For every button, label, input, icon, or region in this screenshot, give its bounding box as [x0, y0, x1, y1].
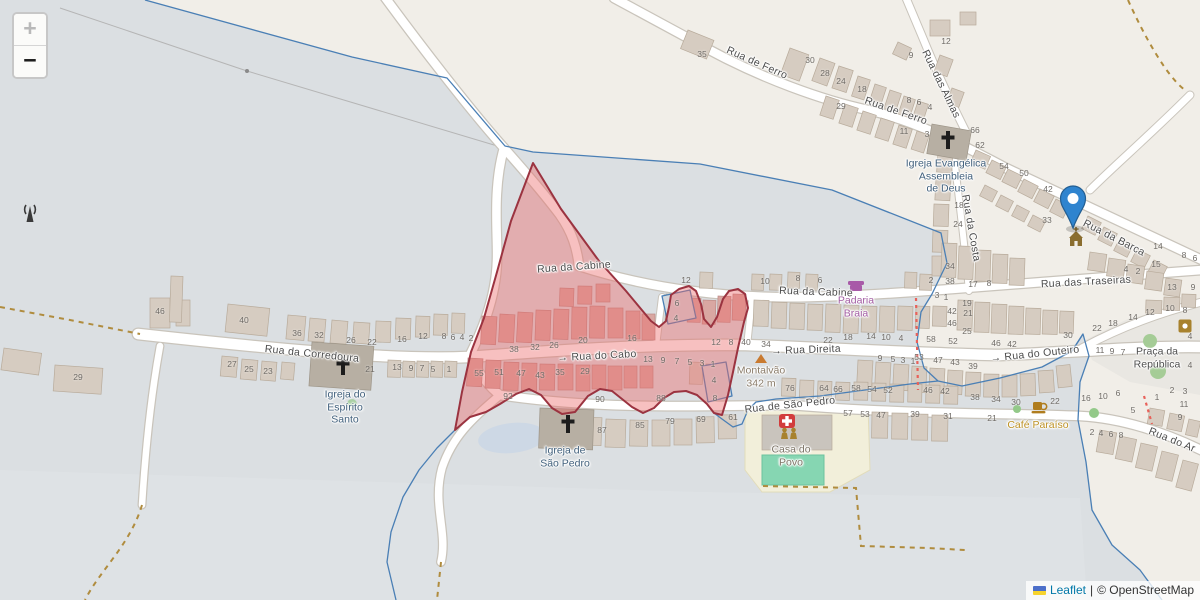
osm-copyright: © OpenStreetMap: [1097, 583, 1194, 597]
ukraine-flag-icon: [1033, 586, 1046, 595]
map-canvas[interactable]: Rua da CabineRua da CabineRua das Trasei…: [0, 0, 1200, 600]
attribution-bar: Leaflet|© OpenStreetMap: [1026, 581, 1200, 600]
zoom-in-button[interactable]: +: [14, 14, 46, 46]
zoom-out-button[interactable]: −: [14, 46, 46, 77]
attribution-separator: |: [1090, 583, 1093, 597]
monument-icon: [1179, 320, 1192, 333]
map-tiles: [0, 0, 1200, 600]
sports-pitch: [762, 455, 824, 485]
first-aid-icon: [779, 414, 795, 428]
leaflet-link[interactable]: Leaflet: [1050, 583, 1086, 597]
casa-do-povo-building: [762, 415, 832, 450]
zoom-control: + −: [12, 12, 48, 79]
bakery-shop-icon: [848, 281, 864, 291]
